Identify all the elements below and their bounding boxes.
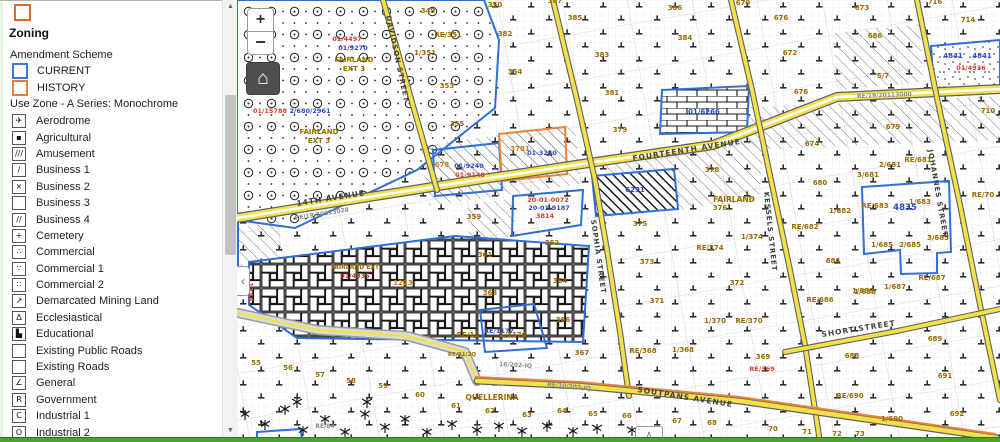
panel-collapse-button[interactable]: ‹	[237, 266, 250, 296]
svg-text:716: 716	[928, 0, 943, 6]
svg-text:355: 355	[450, 120, 465, 128]
svg-text:68: 68	[707, 419, 717, 427]
svg-text:61: 61	[451, 402, 461, 410]
svg-text:RE/687: RE/687	[918, 274, 945, 282]
aerodrome-swatch-icon: ✈	[12, 114, 26, 128]
svg-text:01/6266: 01/6266	[688, 108, 720, 116]
demarcated-mining-land-swatch-icon: ↗	[12, 294, 26, 308]
commercial-1-swatch-icon: ∵	[12, 262, 26, 276]
legend-item-business-2-label: Business 2	[36, 181, 90, 193]
svg-text:672: 672	[783, 49, 798, 57]
svg-text:65: 65	[588, 410, 598, 418]
industrial-1-swatch-icon: C	[12, 409, 26, 423]
zoning-map[interactable]: 14TH AVENUEFOURTEENTH AVENUEDAVIDSON STR…	[237, 0, 1000, 442]
business-1-swatch-icon: /	[12, 163, 26, 177]
svg-text:366: 366	[556, 316, 571, 324]
legend-item-business-4-label: Business 4	[36, 214, 90, 226]
legend-item-educational-label: Educational	[36, 328, 94, 340]
svg-text:359: 359	[467, 213, 482, 221]
svg-text:362: 362	[545, 239, 560, 247]
svg-text:1/351: 1/351	[414, 49, 436, 57]
svg-text:2/680/2961: 2/680/2961	[290, 107, 331, 115]
legend-item-business-3: Business 3	[12, 195, 159, 211]
educational-swatch-icon: ▙	[12, 327, 26, 341]
svg-text:364: 364	[553, 277, 568, 285]
use-zone-heading: Use Zone - A Series: Monochrome	[10, 98, 178, 110]
svg-text:350: 350	[488, 1, 503, 9]
svg-text:EXT 3: EXT 3	[343, 65, 365, 73]
svg-text:EXT 3: EXT 3	[308, 137, 330, 145]
legend-item-ecclesiastical: ΔEcclesiastical	[12, 310, 159, 326]
svg-text:01-9148: 01-9148	[455, 171, 485, 179]
legend-scrollbar[interactable]: ▲ ▼	[222, 0, 237, 442]
legend-item-agricultural-label: Agricultural	[36, 132, 91, 144]
svg-text:375: 375	[633, 220, 648, 228]
legend-item-aerodrome: ✈Aerodrome	[12, 113, 159, 129]
amendment-scheme-heading: Amendment Scheme	[10, 49, 113, 61]
svg-text:676: 676	[774, 14, 789, 22]
svg-text:691: 691	[938, 372, 953, 380]
legend-item-commercial-label: Commercial	[36, 246, 95, 258]
legend-item-history: HISTORY	[12, 79, 91, 95]
svg-text:680: 680	[813, 179, 828, 187]
svg-text:372: 372	[730, 279, 745, 287]
svg-text:RE/690: RE/690	[836, 392, 863, 400]
legend-item-educational: ▙Educational	[12, 326, 159, 342]
svg-text:63: 63	[522, 411, 532, 419]
svg-text:6291: 6291	[625, 186, 645, 194]
legend-item-existing-roads-label: Existing Roads	[36, 361, 109, 373]
svg-text:FAIRLAND EXT: FAIRLAND EXT	[331, 264, 380, 271]
svg-text:55: 55	[251, 359, 261, 367]
svg-text:674: 674	[805, 140, 820, 148]
legend-item-current-label: CURRENT	[37, 65, 91, 77]
map-canvas[interactable]: 14TH AVENUEFOURTEENTH AVENUEDAVIDSON STR…	[237, 0, 1000, 442]
svg-text:1223: 1223	[393, 279, 413, 287]
legend-item-agricultural: ▪Agricultural	[12, 129, 159, 145]
panel-edge-strip	[0, 1, 3, 442]
svg-text:349: 349	[421, 7, 436, 15]
svg-text:363: 363	[483, 289, 498, 297]
svg-text:678: 678	[435, 161, 450, 169]
svg-text:383: 383	[595, 51, 610, 59]
svg-text:62: 62	[485, 407, 495, 415]
svg-text:1/683: 1/683	[909, 198, 931, 206]
legend-item-demarcated-mining-land: ↗Demarcated Mining Land	[12, 293, 159, 309]
partial-legend-swatch-icon	[14, 4, 31, 21]
legend-item-current: CURRENT	[12, 63, 91, 79]
svg-text:1/368: 1/368	[672, 346, 694, 354]
svg-text:379: 379	[613, 126, 628, 134]
svg-text:QUELLERINA: QUELLERINA	[466, 393, 519, 402]
svg-text:RE/683: RE/683	[861, 202, 888, 210]
svg-text:1/682: 1/682	[829, 207, 851, 215]
svg-text:1/690: 1/690	[881, 415, 903, 423]
svg-text:361: 361	[478, 251, 493, 259]
legend-panel: Zoning Amendment Scheme CURRENTHISTORY U…	[0, 0, 222, 442]
svg-text:RE/70: RE/70	[972, 191, 995, 199]
commercial-swatch-icon: ∴	[12, 245, 26, 259]
svg-text:20-01-0072: 20-01-0072	[527, 196, 569, 204]
svg-text:RE/682: RE/682	[791, 223, 818, 231]
svg-text:692: 692	[950, 410, 965, 418]
svg-text:1/687: 1/687	[884, 283, 906, 291]
legend-item-history-label: HISTORY	[37, 82, 86, 94]
svg-text:01/9240: 01/9240	[454, 162, 484, 170]
legend-item-commercial-2-label: Commercial 2	[36, 279, 104, 291]
svg-text:FAIRLAND: FAIRLAND	[300, 128, 339, 136]
legend-item-cemetery-label: Cemetery	[36, 230, 84, 242]
legend-item-commercial-2: ∷Commercial 2	[12, 277, 159, 293]
general-swatch-icon: ∠	[12, 376, 26, 390]
svg-text:673: 673	[855, 4, 870, 12]
svg-text:01/9270: 01/9270	[338, 44, 368, 52]
svg-text:FAIRLAND: FAIRLAND	[335, 56, 374, 64]
business-4-swatch-icon: //	[12, 213, 26, 227]
svg-text:RE/11: RE/11	[457, 331, 480, 339]
legend-title: Zoning	[9, 26, 49, 40]
svg-text:688: 688	[845, 352, 860, 360]
svg-text:367: 367	[575, 349, 590, 357]
svg-text:01/15788: 01/15788	[253, 107, 288, 115]
existing-roads-swatch-icon	[12, 360, 26, 374]
legend-item-existing-public-roads-label: Existing Public Roads	[36, 345, 142, 357]
amusement-swatch-icon: ///	[12, 147, 26, 161]
svg-text:381: 381	[605, 89, 620, 97]
svg-text:1/370: 1/370	[704, 317, 726, 325]
cemetery-swatch-icon: +	[12, 229, 26, 243]
legend-item-industrial-1-label: Industrial 1	[36, 410, 90, 422]
legend-item-general-label: General	[36, 377, 75, 389]
svg-text:01/4497: 01/4497	[332, 35, 362, 43]
svg-text:387: 387	[548, 0, 563, 5]
svg-text:686: 686	[868, 32, 883, 40]
svg-text:RE/374: RE/374	[696, 244, 723, 252]
svg-text:670: 670	[736, 0, 751, 7]
zoom-in-button[interactable]: +	[247, 8, 274, 32]
svg-text:01/4935: 01/4935	[340, 272, 370, 280]
scroll-down-icon[interactable]: ▼	[223, 424, 238, 437]
svg-text:RE/351: RE/351	[434, 31, 461, 39]
svg-text:384: 384	[678, 34, 693, 42]
svg-text:354: 354	[508, 68, 523, 76]
svg-text:01/4936: 01/4936	[956, 64, 986, 72]
legend-item-amusement-label: Amusement	[36, 148, 95, 160]
legend-item-commercial: ∴Commercial	[12, 244, 159, 260]
bottom-status-bar	[0, 437, 1000, 442]
legend-item-government: RGovernment	[12, 392, 159, 408]
svg-text:20-01-9187: 20-01-9187	[528, 204, 570, 212]
existing-public-roads-swatch-icon	[12, 344, 26, 358]
legend-item-commercial-1-label: Commercial 1	[36, 263, 104, 275]
svg-text:369: 369	[756, 353, 771, 361]
svg-text:66: 66	[622, 412, 632, 420]
svg-text:67: 67	[672, 417, 682, 425]
scrollbar-thumb[interactable]	[225, 95, 236, 255]
svg-text:373: 373	[640, 258, 655, 266]
svg-text:3814: 3814	[536, 212, 555, 220]
legend-item-commercial-1: ∵Commercial 1	[12, 261, 159, 277]
legend-item-aerodrome-label: Aerodrome	[36, 115, 90, 127]
svg-text:RE/84: RE/84	[315, 423, 334, 430]
svg-text:60: 60	[415, 391, 425, 399]
legend-item-business-2: ×Business 2	[12, 179, 159, 195]
legend-item-business-4: //Business 4	[12, 211, 159, 227]
government-swatch-icon: R	[12, 393, 26, 407]
app-window: Zoning Amendment Scheme CURRENTHISTORY U…	[0, 0, 1000, 442]
svg-text:5/7: 5/7	[877, 72, 889, 80]
history-swatch-icon	[12, 80, 28, 96]
svg-text:64: 64	[557, 407, 567, 415]
svg-text:56: 56	[283, 364, 293, 372]
legend-item-cemetery: +Cemetery	[12, 228, 159, 244]
svg-text:1/374: 1/374	[741, 233, 763, 241]
svg-text:57: 57	[315, 371, 325, 379]
scroll-up-icon[interactable]: ▲	[223, 0, 238, 13]
svg-text:1/1176: 1/1176	[500, 331, 527, 339]
legend-item-industrial-1: CIndustrial 1	[12, 408, 159, 424]
legend-item-business-1: /Business 1	[12, 162, 159, 178]
commercial-2-swatch-icon: ∷	[12, 278, 26, 292]
svg-text:70: 70	[768, 425, 778, 433]
legend-item-existing-public-roads: Existing Public Roads	[12, 342, 159, 358]
legend-item-demarcated-mining-land-label: Demarcated Mining Land	[36, 295, 159, 307]
svg-text:59: 59	[378, 382, 388, 390]
svg-text:RE/681: RE/681	[904, 156, 931, 164]
svg-text:1/686: 1/686	[854, 288, 876, 296]
svg-text:684: 684	[826, 257, 841, 265]
business-3-swatch-icon	[12, 196, 26, 210]
svg-text:676: 676	[794, 88, 809, 96]
legend-item-government-label: Government	[36, 394, 97, 406]
svg-text:714: 714	[961, 16, 976, 24]
svg-text:RE/369: RE/369	[749, 365, 775, 373]
svg-text:710: 710	[981, 107, 996, 115]
zoom-out-button[interactable]: −	[247, 31, 274, 55]
svg-text:4841: 4841	[972, 52, 992, 60]
svg-text:RE/686: RE/686	[806, 296, 833, 304]
svg-text:01-3240: 01-3240	[527, 149, 557, 157]
svg-text:386: 386	[668, 4, 683, 12]
amendment-scheme-list: CURRENTHISTORY	[12, 63, 91, 96]
home-button[interactable]: ⌂	[246, 62, 280, 95]
svg-text:4841: 4841	[943, 52, 963, 60]
legend-item-ecclesiastical-label: Ecclesiastical	[36, 312, 102, 324]
svg-text:2/685: 2/685	[899, 241, 921, 249]
svg-text:RE/370: RE/370	[735, 317, 762, 325]
svg-text:71: 71	[802, 428, 812, 436]
svg-text:3/681: 3/681	[857, 171, 879, 179]
svg-text:378: 378	[705, 166, 720, 174]
legend-item-business-1-label: Business 1	[36, 164, 90, 176]
svg-text:58: 58	[346, 377, 356, 385]
svg-text:353: 353	[440, 82, 455, 90]
svg-text:RE/368: RE/368	[629, 347, 656, 355]
use-zone-list: ✈Aerodrome▪Agricultural///Amusement/Busi…	[12, 113, 159, 441]
svg-text:2/681: 2/681	[879, 161, 901, 169]
svg-text:385: 385	[568, 14, 583, 22]
legend-item-general: ∠General	[12, 375, 159, 391]
svg-text:382: 382	[498, 30, 513, 38]
legend-item-amusement: ///Amusement	[12, 146, 159, 162]
business-2-swatch-icon: ×	[12, 180, 26, 194]
svg-text:FAIRLAND: FAIRLAND	[713, 195, 755, 204]
svg-text:679: 679	[886, 123, 901, 131]
svg-text:376: 376	[713, 204, 728, 212]
current-swatch-icon	[12, 63, 28, 79]
ecclesiastical-swatch-icon: Δ	[12, 311, 26, 325]
legend-item-existing-roads: Existing Roads	[12, 359, 159, 375]
legend-item-business-3-label: Business 3	[36, 197, 90, 209]
svg-text:3/685: 3/685	[927, 234, 949, 242]
svg-text:1/685: 1/685	[871, 241, 893, 249]
agricultural-swatch-icon: ▪	[12, 131, 26, 145]
svg-text:RE/81/2Q: RE/81/2Q	[448, 352, 476, 358]
svg-text:689: 689	[928, 335, 943, 343]
svg-text:371: 371	[650, 297, 665, 305]
